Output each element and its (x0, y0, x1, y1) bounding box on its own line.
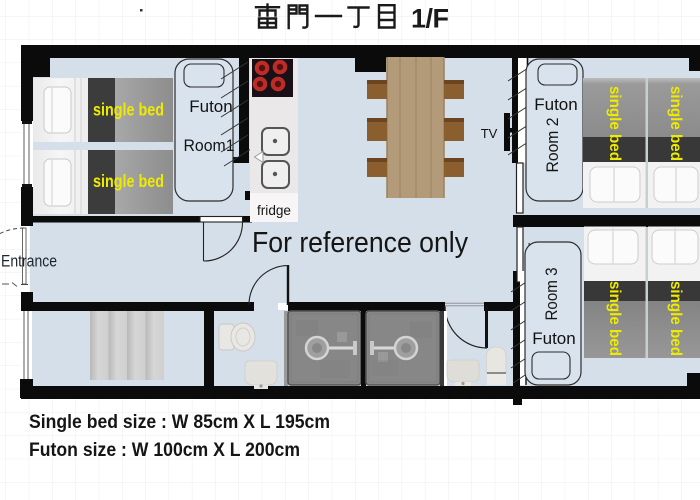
svg-text:Futon size : W 100cm X L 200cm: Futon size : W 100cm X L 200cm (29, 439, 300, 461)
svg-text:Room 3: Room 3 (542, 268, 561, 321)
svg-text:For reference only: For reference only (252, 227, 468, 259)
svg-text:fridge: fridge (257, 202, 291, 218)
svg-text:Futon: Futon (532, 329, 575, 348)
svg-text:single bed: single bed (667, 86, 684, 161)
svg-text:single bed: single bed (606, 281, 623, 356)
svg-text:Room 2: Room 2 (543, 118, 562, 173)
svg-text:Room1: Room1 (184, 136, 235, 155)
svg-text:Entrance: Entrance (1, 252, 57, 271)
svg-text:Futon: Futon (534, 95, 577, 114)
svg-text:single bed: single bed (667, 281, 684, 356)
svg-text:Single bed size : W 85cm X L 1: Single bed size : W 85cm X L 195cm (29, 411, 330, 433)
svg-text:single bed: single bed (93, 171, 164, 191)
svg-text:single bed: single bed (93, 100, 164, 120)
svg-text:single bed: single bed (606, 86, 623, 161)
svg-text:1/F: 1/F (411, 4, 449, 34)
svg-text:TV: TV (481, 126, 498, 141)
